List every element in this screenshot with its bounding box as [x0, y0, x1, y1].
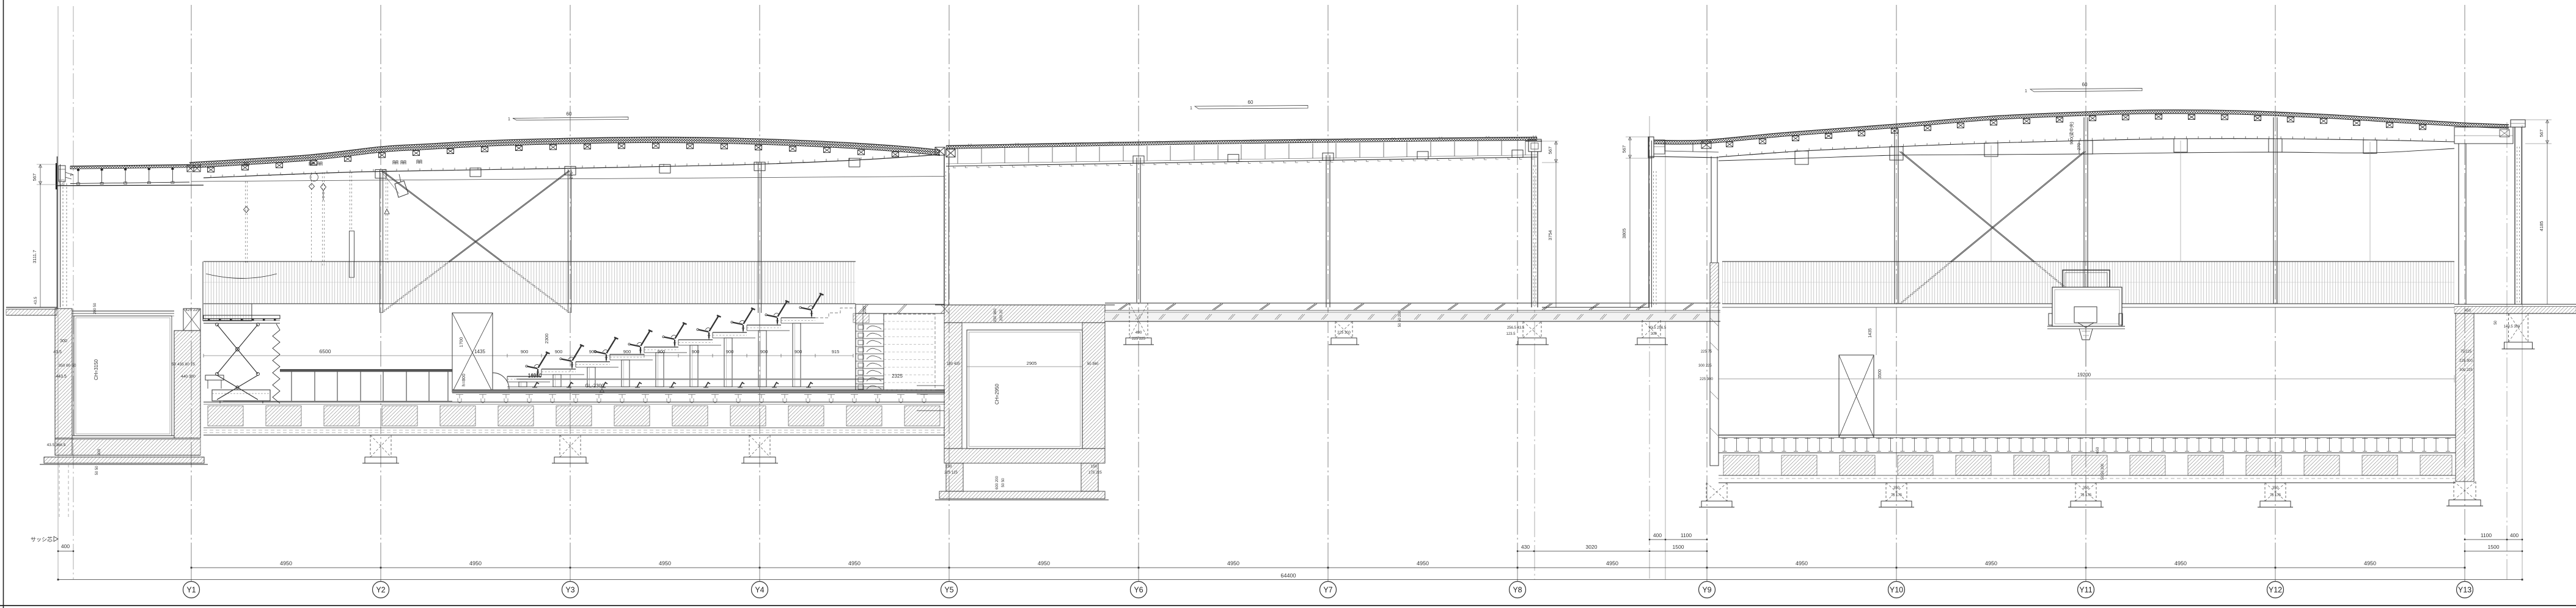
svg-text:490: 490 — [1136, 331, 1142, 335]
svg-text:350: 350 — [2083, 486, 2090, 490]
svg-text:1700: 1700 — [458, 337, 464, 348]
svg-text:256.5 43.5: 256.5 43.5 — [1507, 326, 1525, 330]
svg-text:300 225: 300 225 — [2459, 368, 2473, 372]
svg-text:350: 350 — [1893, 486, 1900, 490]
svg-text:3754: 3754 — [1547, 230, 1553, 241]
svg-text:270: 270 — [2077, 143, 2082, 150]
svg-text:300: 300 — [97, 449, 101, 455]
svg-text:900: 900 — [555, 349, 563, 354]
svg-text:CH=3150: CH=3150 — [94, 359, 99, 380]
svg-text:200 20: 200 20 — [1000, 309, 1004, 321]
svg-text:Y11: Y11 — [2079, 586, 2092, 595]
svg-text:60: 60 — [567, 111, 572, 117]
svg-text:50 50 200: 50 50 200 — [1398, 310, 1402, 327]
svg-text:6500: 6500 — [320, 348, 331, 354]
svg-text:64400: 64400 — [1280, 573, 1296, 579]
svg-text:350 80 50: 350 80 50 — [59, 364, 76, 368]
svg-text:3500: 3500 — [1878, 369, 1882, 379]
svg-text:900: 900 — [692, 349, 700, 354]
svg-text:Y12: Y12 — [2269, 586, 2282, 595]
svg-text:75 175: 75 175 — [1891, 494, 1903, 497]
svg-text:4950: 4950 — [1796, 560, 1808, 566]
svg-text:1435: 1435 — [1868, 328, 1873, 338]
svg-text:1: 1 — [508, 117, 510, 122]
svg-text:270: 270 — [568, 172, 574, 180]
svg-text:3111.7: 3111.7 — [32, 250, 37, 263]
svg-text:4950: 4950 — [2174, 560, 2187, 566]
svg-text:4950: 4950 — [1038, 560, 1050, 566]
svg-text:567: 567 — [2539, 130, 2544, 137]
svg-text:16950: 16950 — [528, 373, 542, 379]
svg-text:75 225: 75 225 — [2460, 350, 2472, 354]
svg-text:Y8: Y8 — [1513, 586, 1522, 595]
svg-text:Y13: Y13 — [2458, 586, 2471, 595]
svg-text:19200: 19200 — [2077, 372, 2091, 378]
svg-text:1100: 1100 — [2481, 532, 2492, 538]
svg-text:150: 150 — [1091, 464, 1098, 469]
svg-text:1: 1 — [1190, 106, 1192, 111]
svg-text:3805: 3805 — [1621, 229, 1627, 239]
svg-text:4950: 4950 — [469, 560, 482, 566]
svg-text:4950: 4950 — [1985, 560, 1997, 566]
svg-text:650: 650 — [2096, 447, 2100, 453]
svg-text:60: 60 — [1248, 100, 1253, 105]
svg-text:4185: 4185 — [2539, 221, 2544, 232]
svg-text:250 360: 250 360 — [994, 309, 997, 322]
svg-text:900: 900 — [794, 349, 802, 354]
svg-text:225 300: 225 300 — [2459, 359, 2473, 363]
svg-text:225 300: 225 300 — [1337, 331, 1351, 335]
svg-text:150: 150 — [945, 464, 952, 469]
svg-text:900: 900 — [623, 349, 631, 354]
svg-text:サッシ芯: サッシ芯 — [31, 536, 53, 543]
svg-text:Y7: Y7 — [1323, 586, 1332, 595]
svg-text:915: 915 — [832, 349, 840, 354]
svg-text:4950: 4950 — [2364, 560, 2376, 566]
svg-text:50 50: 50 50 — [1002, 478, 1005, 488]
svg-text:Y5: Y5 — [944, 586, 953, 595]
svg-text:2905: 2905 — [1027, 361, 1037, 366]
svg-text:4950: 4950 — [1227, 560, 1239, 566]
svg-text:Y4: Y4 — [755, 586, 764, 595]
svg-text:h=800: h=800 — [461, 373, 466, 386]
svg-text:Y2: Y2 — [376, 586, 385, 595]
svg-text:900: 900 — [521, 349, 529, 354]
svg-text:43.5: 43.5 — [53, 350, 62, 354]
svg-text:CH=2950: CH=2950 — [994, 383, 1000, 405]
svg-text:225 300: 225 300 — [1700, 378, 1713, 381]
svg-text:425 225: 425 225 — [185, 308, 200, 312]
svg-text:1500: 1500 — [2488, 544, 2500, 550]
svg-text:900: 900 — [589, 349, 597, 354]
svg-text:430: 430 — [1521, 544, 1530, 550]
svg-text:300 225: 300 225 — [1698, 364, 1712, 368]
svg-text:123.5: 123.5 — [1506, 332, 1516, 336]
svg-text:225 125: 225 125 — [944, 471, 958, 475]
svg-text:Y6: Y6 — [1134, 586, 1143, 595]
svg-text:43.5 366.5: 43.5 366.5 — [47, 443, 66, 447]
svg-text:GL-2300: GL-2300 — [585, 383, 604, 389]
svg-text:440 300: 440 300 — [181, 375, 196, 379]
svg-text:50 50: 50 50 — [95, 466, 99, 475]
svg-text:43.5: 43.5 — [34, 296, 38, 304]
svg-text:900: 900 — [658, 349, 666, 354]
svg-text:400: 400 — [2510, 532, 2519, 538]
svg-text:Y9: Y9 — [1702, 586, 1711, 595]
svg-text:1435: 1435 — [474, 349, 485, 354]
svg-text:1500: 1500 — [1673, 544, 1684, 550]
svg-text:900(梁中央): 900(梁中央) — [2069, 122, 2074, 144]
svg-text:300: 300 — [1651, 332, 1657, 336]
svg-text:2325: 2325 — [892, 373, 903, 379]
svg-text:Y1: Y1 — [186, 586, 196, 595]
svg-text:2300: 2300 — [544, 334, 549, 344]
svg-text:Y10: Y10 — [1890, 586, 1903, 595]
svg-text:4950: 4950 — [280, 560, 292, 566]
svg-text:567: 567 — [32, 174, 37, 181]
svg-text:400: 400 — [1653, 532, 1662, 538]
svg-text:600 200: 600 200 — [996, 476, 999, 489]
svg-text:143.5 300: 143.5 300 — [2504, 325, 2520, 329]
svg-text:4950: 4950 — [659, 560, 671, 566]
svg-text:300: 300 — [60, 339, 67, 343]
svg-text:1100: 1100 — [1681, 532, 1692, 538]
svg-text:60: 60 — [2082, 82, 2088, 87]
svg-text:50 435 80 75: 50 435 80 75 — [172, 362, 195, 367]
svg-text:175 225: 175 225 — [1088, 471, 1102, 475]
svg-text:350: 350 — [2272, 486, 2279, 490]
svg-text:75 175: 75 175 — [2080, 494, 2092, 497]
svg-text:43.5 256.5: 43.5 256.5 — [1649, 326, 1667, 330]
svg-text:50 360: 50 360 — [1087, 362, 1099, 366]
svg-text:3020: 3020 — [1586, 544, 1598, 550]
svg-text:900: 900 — [760, 349, 768, 354]
svg-text:50 50 200: 50 50 200 — [2101, 463, 2105, 480]
svg-text:400: 400 — [61, 543, 70, 549]
svg-text:443.5: 443.5 — [56, 375, 67, 379]
svg-text:4950: 4950 — [1606, 560, 1618, 566]
svg-text:50: 50 — [2494, 320, 2498, 324]
svg-text:225 75: 225 75 — [1701, 350, 1712, 354]
svg-text:1: 1 — [2025, 89, 2027, 93]
svg-text:567: 567 — [1547, 147, 1553, 155]
svg-text:180 435: 180 435 — [947, 362, 960, 366]
svg-text:200 50: 200 50 — [94, 302, 97, 314]
svg-text:567: 567 — [1621, 145, 1627, 153]
svg-text:900: 900 — [726, 349, 734, 354]
svg-text:75 175: 75 175 — [2270, 494, 2281, 497]
svg-text:Y3: Y3 — [565, 586, 574, 595]
svg-text:4950: 4950 — [848, 560, 861, 566]
svg-text:225 225: 225 225 — [1132, 337, 1145, 341]
svg-text:450: 450 — [2465, 309, 2471, 313]
svg-text:4950: 4950 — [1417, 560, 1429, 566]
